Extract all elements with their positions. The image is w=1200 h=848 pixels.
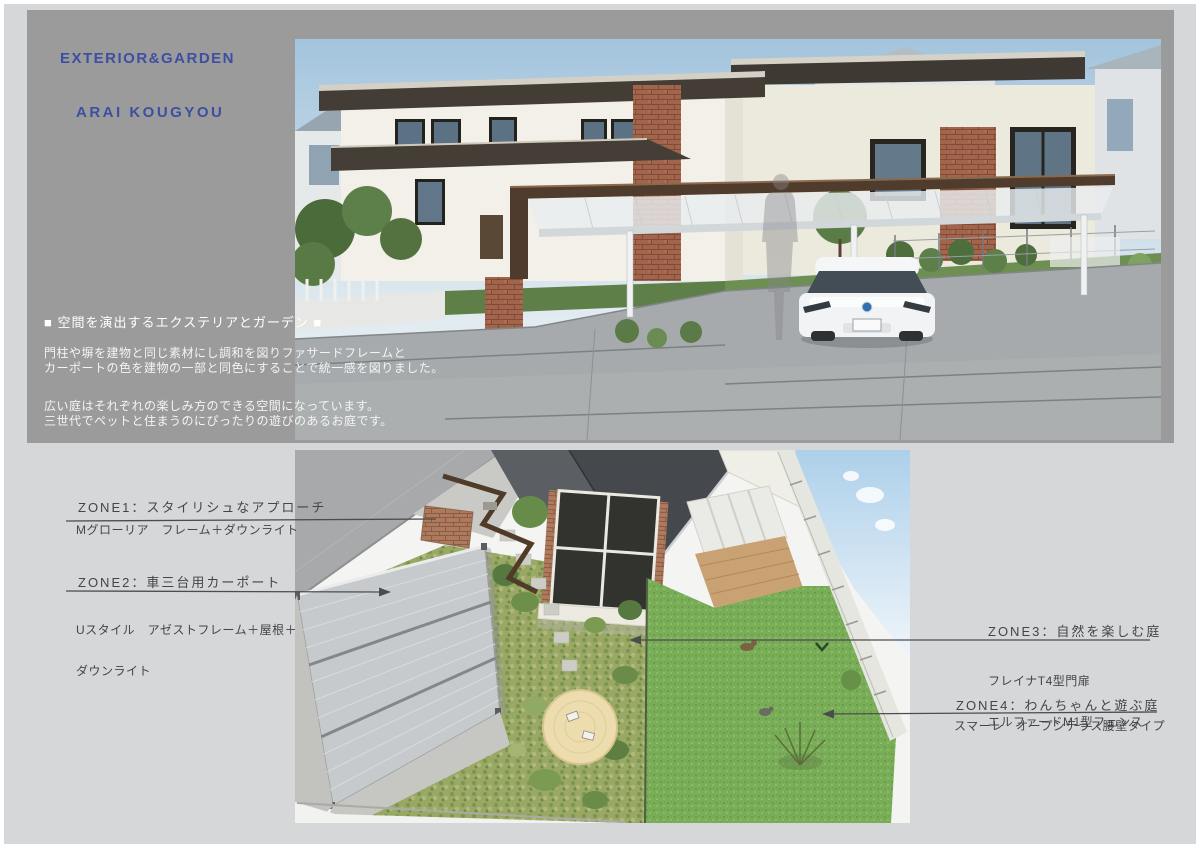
zone1-title: ZONE1：スタイリシュなアプローチ [78,497,326,516]
hero-heading: ■ 空間を演出するエクステリアとガーデン ■ [44,312,322,331]
brochure-page: EXTERIOR&GARDEN ARAI KOUGYOU [0,0,1200,848]
zone4-title: ZONE4：わんちゃんと遊ぶ庭 [956,695,1159,714]
brand-logo: EXTERIOR&GARDEN ARAI KOUGYOU [60,14,235,158]
exterior-perspective-image [295,39,1161,440]
hero-panel: EXTERIOR&GARDEN ARAI KOUGYOU [27,10,1174,443]
gate-brick-wall [485,277,523,333]
zone2-detail: Uスタイル アゼストフレーム＋屋根＋ ダウンライト [76,597,297,705]
car-badge [862,302,872,312]
brand-line-2: ARAI KOUGYOU [60,104,235,122]
hero-paragraph-2: 広い庭はそれぞれの楽しみ方のできる空間になっています。 三世代でペットと住まうの… [44,399,393,428]
car [799,257,935,348]
first-floor-window [415,179,445,225]
zone1-detail: Mグローリア フレーム＋ダウンライト [76,524,299,538]
zone3-title: ZONE3：自然を楽しむ庭 [988,621,1161,640]
zone2-title: ZONE2：車三台用カーポート [78,572,281,591]
paver-circle-terrace [543,690,617,764]
brand-line-1: EXTERIOR&GARDEN [60,50,235,68]
entry-door [480,215,503,259]
facade-frame-pillar [510,187,528,279]
zone4-detail: スマーレ オープンテラス腰壁タイプ [954,720,1165,734]
garden-plan-image [295,450,910,823]
hero-paragraph-1: 門柱や塀を建物と同じ素材にし調和を図りファサードフレームと カーポートの色を建物… [44,346,444,375]
